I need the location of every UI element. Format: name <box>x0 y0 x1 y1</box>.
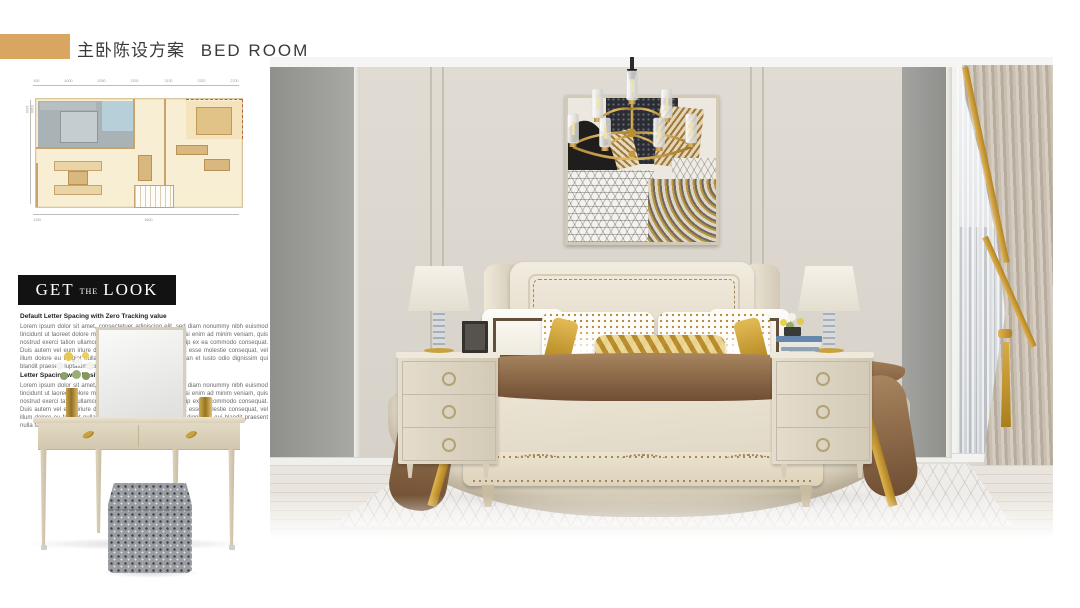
accent-swatch <box>0 34 70 59</box>
ring-pull <box>816 405 830 419</box>
chandelier <box>552 57 712 177</box>
dimension-line <box>30 100 31 204</box>
banner-word-the: THE <box>80 284 99 296</box>
wall-panel-gray-left <box>270 67 354 459</box>
vanity-drawers <box>38 423 240 450</box>
gold-vase <box>66 388 78 418</box>
wardrobe <box>40 102 96 110</box>
lamp-base-right <box>823 309 835 351</box>
floor-plan: 100 4000 2050 2150 2130 2320 2700 1700 5… <box>25 78 263 252</box>
window-frame <box>952 67 957 457</box>
table-lamp-left <box>408 266 470 311</box>
floor-plan-top-dimensions: 100 4000 2050 2150 2130 2320 2700 <box>33 78 239 83</box>
ring-pull <box>816 438 830 452</box>
get-the-look-banner: GET THE LOOK <box>18 275 176 305</box>
console-symbol <box>138 155 152 181</box>
section-heading-1: Default Letter Spacing with Zero Trackin… <box>20 313 270 320</box>
table-lamp-right <box>798 266 860 311</box>
vanity-flowers <box>52 348 98 390</box>
vanity-leg <box>228 449 235 547</box>
lamp-base-left <box>433 309 445 351</box>
ottoman <box>108 483 192 573</box>
dimension-line <box>33 214 239 215</box>
ring-pull <box>442 438 456 452</box>
photo-frame <box>462 321 488 353</box>
gold-jar <box>199 397 212 417</box>
bathroom <box>102 101 133 131</box>
desk-symbol <box>176 145 208 155</box>
footboard-rail <box>463 452 823 486</box>
vanity-leg <box>95 449 102 533</box>
vanity-mirror <box>96 327 186 423</box>
curtain-tieback <box>998 329 1012 338</box>
presentation-board: 主卧陈设方案 BED ROOM 100 4000 2050 2150 2130 … <box>0 0 1080 608</box>
stairwell <box>134 185 174 208</box>
page-title-cn: 主卧陈设方案 <box>77 41 185 60</box>
banner-word-look: LOOK <box>103 280 158 300</box>
ring-pull <box>442 405 456 419</box>
ring-pull <box>442 372 456 386</box>
bed-symbol <box>60 111 98 143</box>
ring-pull <box>816 372 830 386</box>
dimension-line <box>33 85 239 86</box>
sofa-symbol <box>54 161 102 171</box>
bedroom-render <box>270 57 1053 545</box>
bottom-fade <box>270 495 1053 545</box>
nightstand-left <box>398 352 498 464</box>
coffee-table-symbol <box>68 171 88 185</box>
nightstand-right <box>772 352 872 464</box>
vanity-leg <box>40 449 47 547</box>
banner-word-get: GET <box>36 280 75 300</box>
floor-plan-bottom-dimensions: 1100 4600 <box>33 217 153 222</box>
flower-pot <box>778 313 812 335</box>
floor-plan-drawing <box>35 98 243 208</box>
book <box>781 347 819 351</box>
